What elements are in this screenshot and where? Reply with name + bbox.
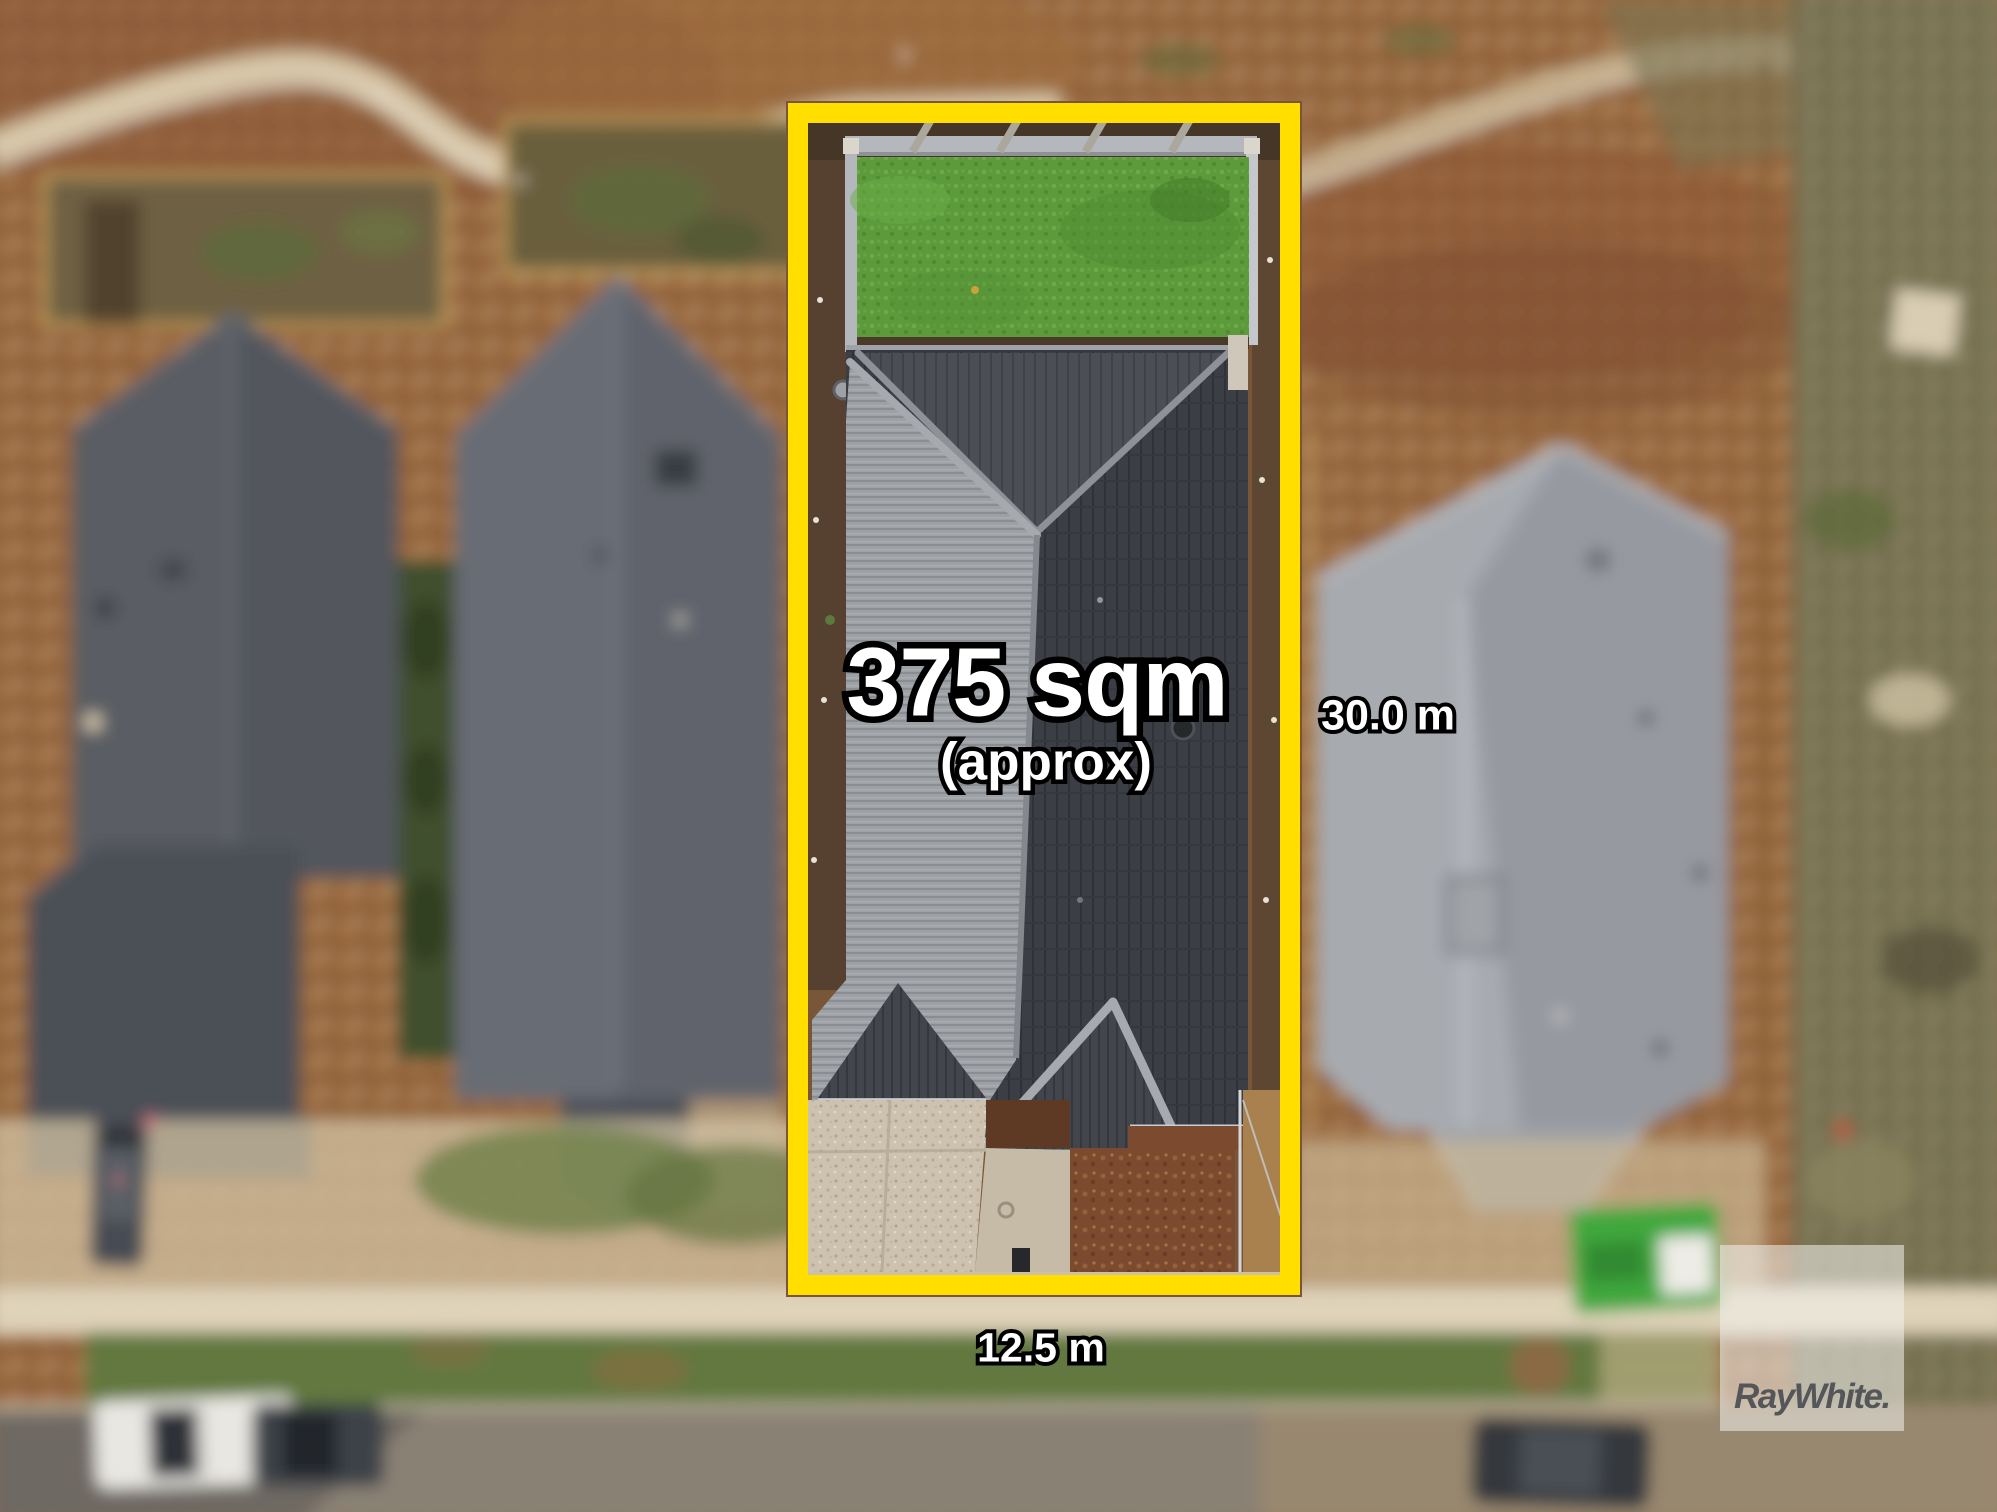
garden-trailer bbox=[1569, 1202, 1722, 1314]
raywhite-logo-text: RayWhite. bbox=[1734, 1377, 1890, 1417]
nature-strip bbox=[85, 1332, 1720, 1408]
area-label: 375 sqm bbox=[846, 634, 1227, 731]
frontage-dimension-label: 12.5 m bbox=[977, 1328, 1105, 1369]
neighbor-house-left bbox=[455, 278, 782, 1232]
hedge-gap bbox=[398, 560, 455, 1060]
neighbor-house-right bbox=[1318, 446, 1728, 1212]
area-approx-label: (approx) bbox=[940, 736, 1152, 789]
car-dark-suv bbox=[252, 1404, 384, 1486]
aerial-photo: 375 sqm (approx) 30.0 m 12.5 m RayWhite. bbox=[0, 0, 1997, 1512]
car-sedan-right bbox=[1471, 1417, 1652, 1509]
depth-dimension-label: 30.0 m bbox=[1321, 695, 1455, 738]
raywhite-logo: RayWhite. bbox=[1720, 1245, 1904, 1431]
car-driveway bbox=[89, 1117, 148, 1267]
